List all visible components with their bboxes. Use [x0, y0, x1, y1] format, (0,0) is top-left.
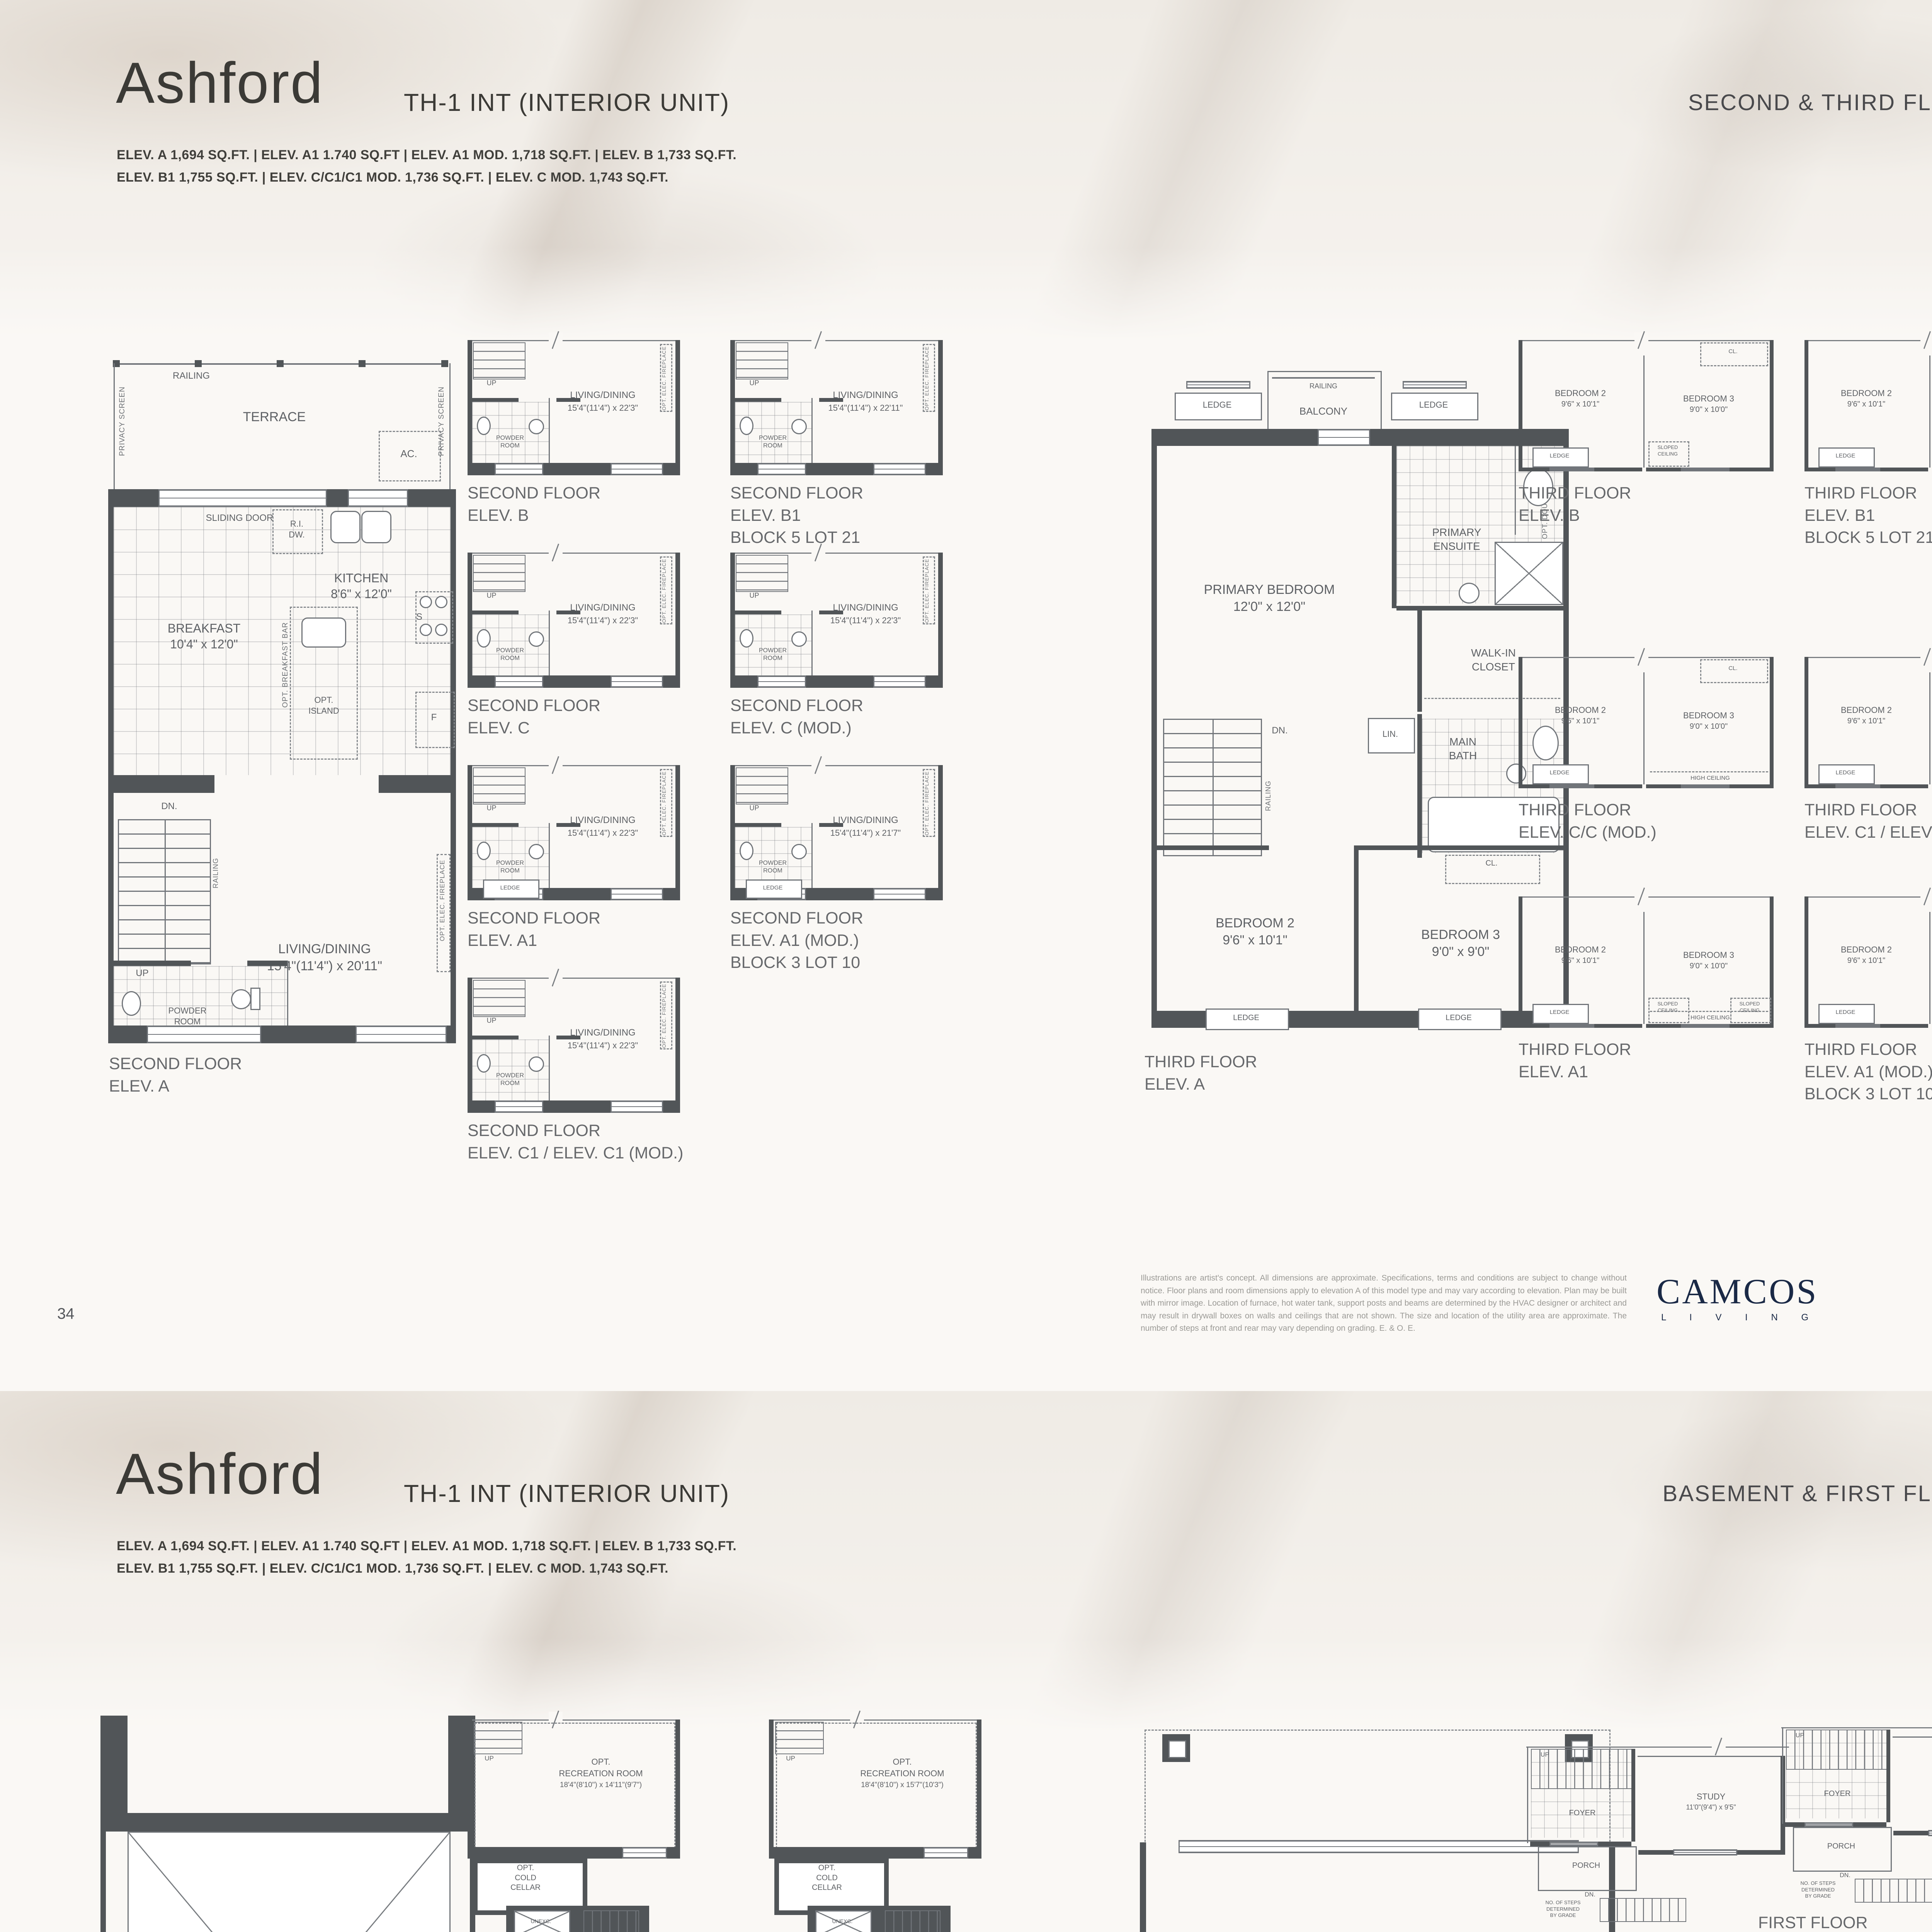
wall: [1151, 429, 1157, 1028]
bedroom2-dims: 9'6" x 10'1": [1561, 716, 1600, 726]
element: BEDROOM 2: [1841, 705, 1892, 716]
wall: [1392, 446, 1396, 608]
window: [757, 675, 806, 688]
living-dining-dims: 15'4"(11'4") x 22'3": [568, 615, 638, 626]
wall: [114, 961, 191, 966]
element: 9'6" x 10'1": [1847, 400, 1886, 410]
opt-breakfast-bar-label: OPT. BREAKFAST BAR: [281, 622, 290, 707]
dn-label: DN.: [1585, 1891, 1595, 1899]
element: ELEV. B: [468, 505, 600, 527]
main-plan-second-floor-elev-a: RAILING PRIVACY SCREEN PRIVACY SCREEN TE…: [108, 359, 456, 1043]
kitchen-window: [348, 489, 408, 507]
window: [873, 463, 926, 475]
high-ceiling-line: [1650, 771, 1768, 774]
foyer-label: FOYER: [1824, 1789, 1851, 1799]
window: [1835, 1024, 1880, 1028]
front-door: [1804, 1822, 1853, 1827]
fireplace-label: OPT. ELEC. FIREPLACE: [661, 984, 667, 1048]
caption-second-floor-elev-b1-block-5-lot-21: SECOND FLOORELEV. B1BLOCK 5 LOT 21: [730, 482, 863, 549]
plan-geometry: [1527, 1747, 1528, 1843]
bedroom2-label: BEDROOM 29'6" x 10'1": [1216, 915, 1294, 949]
living-dining-label: LIVING/DINING: [833, 815, 898, 827]
porch-label: PORCH: [1827, 1842, 1855, 1852]
front-window: [355, 1026, 447, 1043]
plan-geometry: [675, 340, 680, 475]
element: CLOSET: [1471, 660, 1516, 674]
element: ROOM: [496, 442, 524, 450]
party-wall-line: [1804, 657, 1932, 658]
element: UP: [485, 1754, 494, 1763]
mini-plan-first-floor: UPFOYERSTUDY11'0"(9'4") x 10'1"PORCHDN.N…: [1781, 1727, 1932, 1903]
up-label: UP: [486, 591, 496, 600]
wall: [277, 360, 284, 367]
mini-plan-second-floor: UPOPT. ELEC. FIREPLACEPOWDERROOMLEDGELIV…: [468, 765, 680, 900]
party-wall-line: [1519, 340, 1774, 341]
living-dining-label: LIVING/DINING: [833, 602, 898, 614]
plan-geometry: [938, 553, 943, 688]
lbl: LEDGE: [1203, 400, 1232, 410]
study-dims: 11'0"(9'4") x 9'5": [1686, 1803, 1736, 1812]
main-plan-basement-elev-a: UNEXCAVATED UP FURNACE HWT LOCATIONOF FU…: [100, 1716, 475, 1932]
element: SECOND FLOOR: [730, 907, 863, 930]
up-label: UP: [749, 591, 759, 600]
lbl: LEDGE: [1446, 1013, 1472, 1023]
page-title: Ashford: [116, 1440, 324, 1507]
fireplace-label: OPT. ELEC. FIREPLACE: [661, 771, 667, 835]
plan-geometry: [1643, 355, 1645, 468]
element: BEDROOM 3: [1683, 710, 1734, 721]
ensuite-toilet: [1459, 583, 1480, 604]
powder-sink: [740, 842, 753, 860]
bedroom3-label: BEDROOM 3: [1683, 393, 1734, 404]
stair-railing-label: RAILING: [212, 858, 220, 888]
element: ROOM: [496, 1080, 524, 1087]
bedroom2-label: BEDROOM 2: [1841, 388, 1892, 399]
up-label: UP: [486, 379, 496, 388]
element: STUDY: [1697, 1791, 1726, 1802]
bedroom2-dims: 9'6" x 10'1": [1847, 400, 1886, 410]
element: LEDGE: [1550, 1009, 1570, 1016]
window: [1549, 784, 1594, 788]
rec-room-label2: RECREATION ROOM: [860, 1768, 944, 1779]
caption-third-floor-elev-b1-block-5-lot-21: THIRD FLOORELEV. B1BLOCK 5 LOT 21: [1804, 482, 1932, 549]
sliding-door-opening: [158, 489, 327, 507]
wall: [100, 1813, 475, 1832]
fireplace-label: OPT. ELEC. FIREPLACE: [924, 559, 930, 623]
element: POWDER: [496, 647, 524, 655]
window: [611, 463, 663, 475]
party-wall-line: [468, 1719, 680, 1721]
element: BALCONY: [1299, 405, 1347, 418]
plan-geometry: [468, 340, 472, 475]
linen-label: LIN.: [1383, 729, 1398, 740]
element: POWDER: [496, 1072, 524, 1080]
bedroom3-label: BEDROOM 3: [1683, 710, 1734, 721]
living-dining-dims: 15'4"(11'4") x 21'7": [830, 828, 901, 838]
wall: [247, 961, 288, 966]
element: BREAKFAST: [168, 621, 241, 636]
element: SECOND FLOOR: [468, 482, 600, 505]
window: [1549, 468, 1594, 471]
ledge-label: LEDGE: [1550, 1009, 1570, 1016]
oval: [435, 624, 447, 636]
steps-note: NO. OF STEPSDETERMINEDBY GRADE: [1800, 1880, 1835, 1900]
mini-plan-third-floor: LEDGEBEDROOM 29'6" x 10'1"BEDROOM 39'0" …: [1519, 657, 1774, 792]
element: CELLAR: [812, 1883, 842, 1893]
living-dining-label: LIVING/DINING: [570, 815, 635, 827]
stairs: [736, 555, 788, 592]
window: [611, 888, 663, 900]
party-wall-line: [468, 340, 680, 341]
plan-geometry: [1886, 1730, 1890, 1822]
fireplace-label: OPT. ELEC. FIREPLACE: [661, 559, 667, 623]
plan-geometry: [468, 553, 472, 688]
element: DETERMINED: [1545, 1906, 1580, 1913]
mini-plan-second-floor: UPOPT. ELEC. FIREPLACEPOWDERROOMLIVING/D…: [468, 340, 680, 475]
element: DW.: [289, 529, 305, 540]
ledge-label: LEDGE: [763, 884, 783, 891]
window: [495, 675, 543, 688]
ac-label: AC.: [400, 447, 417, 460]
bedroom2-label: BEDROOM 2: [1555, 388, 1606, 399]
mini-plan-third-floor: LEDGEBEDROOM 29'6" x 10'1"BEDROOM 39'0" …: [1519, 340, 1774, 475]
plan-geometry: [472, 398, 519, 402]
element: SECOND FLOOR: [468, 1120, 683, 1142]
up-label: UP: [486, 1016, 496, 1025]
caption-second-floor-elev-c1-elev-c1-mod-: SECOND FLOORELEV. C1 / ELEV. C1 (MOD.): [468, 1120, 683, 1164]
rec-room-label: OPT.: [592, 1757, 611, 1767]
party-wall-line: [468, 553, 680, 554]
unexc-label: UNEXC.: [531, 1918, 551, 1925]
element: 15'4"(11'4") x 22'3": [568, 828, 638, 838]
element: THIRD FLOOR: [1804, 799, 1932, 821]
wall: [379, 775, 456, 793]
element: THIRD FLOOR: [1145, 1051, 1257, 1073]
stove-label: S: [416, 611, 422, 623]
element: 12'0" x 12'0": [1204, 599, 1335, 616]
element: BLOCK 5 LOT 21: [1804, 527, 1932, 549]
ledge-label: LEDGE: [1836, 769, 1855, 776]
element: LEDGE: [1550, 769, 1570, 776]
element: F: [431, 712, 437, 724]
powder-toilet: [529, 419, 544, 434]
element: 9'6" x 10'1": [1847, 956, 1886, 966]
stairs: [736, 767, 788, 804]
page-basement-first-floor: Ashford TH-1 INT (INTERIOR UNIT) BASEMEN…: [0, 1391, 1932, 1932]
party-wall-line: [730, 340, 943, 341]
window: [495, 1100, 543, 1113]
element: BEDROOM 2: [1555, 944, 1606, 955]
powder-toilet: [791, 631, 807, 647]
bedroom2-dims: 9'6" x 10'1": [1561, 400, 1600, 410]
plan-geometry: [1643, 672, 1645, 784]
wall: [1157, 845, 1269, 850]
caption-third-floor-elev-a1: THIRD FLOORELEV. A1: [1519, 1039, 1631, 1083]
plan-geometry: [769, 1847, 885, 1859]
plan-geometry: [1770, 657, 1774, 788]
primary-bedroom-label: PRIMARY BEDROOM12'0" x 12'0": [1204, 582, 1335, 615]
up-label: UP: [486, 804, 496, 813]
element: SLOPED: [1740, 1001, 1760, 1007]
plan-geometry: [472, 611, 519, 614]
caption-second-floor-elev-a1-mod-block-3-lot-10: SECOND FLOORELEV. A1 (MOD.)BLOCK 3 LOT 1…: [730, 907, 863, 974]
terrace-label: TERRACE: [243, 409, 306, 426]
window: [622, 1847, 667, 1859]
plan-geometry: [1929, 355, 1930, 468]
element: LEDGE: [1203, 400, 1232, 410]
wall: [1354, 850, 1359, 1011]
stairs: [473, 767, 526, 804]
element: LEDGE: [500, 884, 520, 891]
wall: [441, 360, 448, 367]
fireplace-label: OPT. ELEC. FIREPLACE: [439, 860, 446, 941]
stairs: [736, 342, 788, 379]
plan-geometry: [1929, 672, 1930, 784]
stairs: [473, 342, 526, 379]
element: BEDROOM 2: [1841, 388, 1892, 399]
window: [1681, 1024, 1730, 1028]
element: LEDGE: [1836, 1009, 1855, 1016]
ledge-label: LEDGE: [1836, 452, 1855, 459]
element: POWDER: [496, 434, 524, 442]
main-bath-label: MAINBATH: [1449, 735, 1477, 763]
wall: [1140, 1842, 1146, 1932]
element: S: [416, 611, 422, 623]
powder-toilet: [529, 1056, 544, 1072]
plan-geometry: [675, 1719, 680, 1852]
plan-geometry: [1929, 912, 1930, 1024]
balcony-door: [1318, 429, 1370, 446]
living-dining-label: LIVING/DINING: [833, 389, 898, 401]
page-subtitle: TH-1 INT (INTERIOR UNIT): [404, 88, 730, 117]
element: ROOM: [759, 867, 787, 875]
element: ELEV. A1: [1519, 1061, 1631, 1083]
powder-sink: [122, 991, 141, 1016]
specs-line-1: ELEV. A 1,694 SQ.FT. | ELEV. A1 1.740 SQ…: [117, 1539, 736, 1554]
powder-room-label: POWDERROOM: [759, 859, 787, 875]
plan-geometry: [1804, 657, 1808, 788]
main-plan-third-floor-elev-a: LEDGE LEDGE RAILING BALCONY PRIMARY BEDR…: [1151, 371, 1569, 1028]
element: ISLAND: [308, 706, 339, 716]
element: THIRD FLOOR: [1519, 1039, 1631, 1061]
element: ELEV. C1 / ELEV. C1 (MOD.): [468, 1142, 683, 1165]
plan-geometry: [1804, 896, 1808, 1028]
element: 9'6" x 10'1": [1561, 400, 1600, 410]
element: ENSUITE: [1432, 539, 1481, 553]
element: LEDGE: [1446, 1013, 1472, 1023]
wall: [108, 775, 214, 793]
plan-geometry: [472, 1036, 519, 1039]
unexc-label: UNEXC.: [832, 1918, 853, 1925]
railing-label: RAILING: [173, 370, 210, 382]
party-wall-line: [1519, 896, 1774, 898]
dn-label: DN.: [1840, 1872, 1850, 1879]
wall: [1417, 611, 1422, 712]
element: R.I.: [289, 519, 305, 529]
element: LIVING/DINING: [570, 602, 635, 614]
element: BEDROOM 2: [1841, 944, 1892, 955]
plan-geometry: [549, 1036, 550, 1100]
powder-toilet: [791, 844, 807, 859]
mini-plan-third-floor: LEDGEBEDROOM 29'6" x 10'1"BEDROOM 39'0" …: [1804, 340, 1932, 475]
plan-geometry: [1638, 1756, 1784, 1757]
word: CAMCOS: [1656, 1274, 1819, 1309]
element: OPT.: [510, 1863, 541, 1873]
window: [1835, 468, 1880, 471]
opt-island-label: OPT.ISLAND: [308, 695, 339, 716]
element: 15'4"(11'4") x 22'3": [568, 1040, 638, 1051]
powder-room-label: POWDERROOM: [759, 434, 787, 450]
powder-toilet: [529, 844, 544, 859]
caption-second-floor-elev-a1: SECOND FLOORELEV. A1: [468, 907, 600, 952]
win: [1403, 381, 1467, 389]
element: POWDER: [759, 859, 787, 867]
cold-cellar-label: OPT.COLDCELLAR: [812, 1863, 842, 1893]
plan-geometry: [549, 611, 550, 675]
wall-break: [1634, 332, 1648, 348]
rec-room-label2: RECREATION ROOM: [559, 1768, 643, 1779]
wall: [195, 360, 202, 367]
plan-geometry: [730, 553, 735, 688]
element: 15'4"(11'4") x 21'7": [830, 828, 901, 838]
element: MAIN: [1449, 735, 1477, 749]
up-label: UP: [786, 1754, 795, 1763]
caption-second-floor-elev-b: SECOND FLOORELEV. B: [468, 482, 600, 527]
powder-toilet: [791, 419, 807, 434]
fireplace-label: OPT. ELEC. FIREPLACE: [924, 346, 930, 410]
win: [1186, 381, 1250, 389]
element: CEILING: [1658, 451, 1678, 457]
mini-plan-basement: UPOPT.RECREATION ROOM18'4"(8'10") x 14'1…: [468, 1719, 680, 1932]
element: 18'4"(8'10") x 15'7"(10'3"): [861, 1781, 944, 1790]
plan-geometry: [1519, 657, 1522, 788]
sloped-ceiling-label: SLOPEDCEILING: [1658, 444, 1678, 457]
element: BEDROOM 2: [1555, 705, 1606, 716]
element: 9'6" x 10'1": [1847, 716, 1886, 726]
privacy-screen-label-left: PRIVACY SCREEN: [118, 386, 127, 456]
element: HIGH CEILING: [1690, 1014, 1730, 1021]
window: [495, 463, 543, 475]
mini-plan-third-floor: LEDGEBEDROOM 29'6" x 10'1"BEDROOM 39'0" …: [1804, 896, 1932, 1032]
wall-break: [549, 970, 563, 985]
living-dining-dims: 15'4"(11'4") x 22'3": [830, 615, 901, 626]
mini-plan-first-floor: UPFOYERSTUDY11'0"(9'4") x 9'5"PORCHDN.NO…: [1526, 1747, 1789, 1922]
element: UP: [1541, 1751, 1549, 1759]
element: LEDGE: [763, 884, 783, 891]
element: LEDGE: [1233, 1013, 1259, 1023]
garage-door: [1179, 1840, 1579, 1853]
element: POWDER: [759, 647, 787, 655]
up-label: UP: [749, 379, 759, 388]
ln: [1272, 377, 1375, 379]
plan-geometry: [769, 1719, 774, 1852]
element: OPT.: [893, 1757, 912, 1767]
element: 11'0"(9'4") x 9'5": [1686, 1803, 1736, 1812]
wall: [1417, 714, 1422, 858]
living-dining-dims: 15'4"(11'4") x 22'3": [568, 403, 638, 413]
wall-break: [811, 332, 825, 348]
oval: [420, 624, 432, 636]
plan-geometry: [675, 765, 680, 900]
element: ELEV. B1: [730, 505, 863, 527]
sub: L I V I N G: [1661, 1312, 1819, 1323]
plan-geometry: [811, 611, 813, 675]
wall: [108, 489, 114, 1043]
element: OPT.: [592, 1757, 611, 1767]
ln: [1515, 446, 1516, 535]
ln: [114, 363, 115, 489]
caption-third-floor-elev-c1-elev-c1-mod-: THIRD FLOORELEV. C1 / ELEV. C1 (MOD.): [1804, 799, 1932, 844]
primary-ensuite-label: PRIMARYENSUITE: [1432, 526, 1481, 553]
cold-cellar-label: OPT.COLDCELLAR: [510, 1863, 541, 1893]
powder-toilet: [231, 989, 251, 1009]
element: POWDER: [496, 859, 524, 867]
living-dining-dims: 15'4"(11'4") x 22'11": [828, 403, 903, 413]
window: [873, 888, 926, 900]
element: SECOND FLOOR: [109, 1053, 242, 1075]
element: LEDGE: [1836, 769, 1855, 776]
element: 9'6" x 10'1": [1561, 716, 1600, 726]
powder-sink: [740, 629, 753, 648]
bedroom3-dims: 9'0" x 10'0": [1690, 722, 1728, 732]
living-dining-dims: 15'4"(11'4") x 22'3": [568, 1040, 638, 1051]
wall-break: [1634, 649, 1648, 665]
element: POWDER: [168, 1005, 207, 1016]
high-ceiling-label: HIGH CEILING: [1690, 1014, 1730, 1021]
element: CELLAR: [510, 1883, 541, 1893]
element: BEDROOM 3: [1683, 950, 1734, 961]
element: AC.: [400, 447, 417, 460]
plan-geometry: [735, 611, 781, 614]
closet-label: CL.: [1728, 348, 1737, 355]
plan-geometry: [730, 765, 735, 900]
study-label: STUDY: [1697, 1791, 1726, 1802]
high-ceiling-label: HIGH CEILING: [1690, 774, 1730, 782]
element: RECREATION ROOM: [559, 1768, 643, 1779]
element: SECOND FLOOR: [468, 695, 600, 717]
element: BLOCK 5 LOT 21: [730, 527, 863, 549]
element: OPT.: [812, 1863, 842, 1873]
section-heading: SECOND & THIRD FLOOR: [1688, 90, 1932, 116]
element: ELEV. C/C (MOD.): [1519, 821, 1656, 844]
element: BLOCK 3 LOT 10: [730, 952, 863, 974]
bedroom3-dims: 9'0" x 10'0": [1690, 961, 1728, 971]
front-door: [1549, 1842, 1598, 1846]
window: [923, 1847, 968, 1859]
element: BLOCK 3 LOT 10: [1804, 1083, 1932, 1105]
balcony-label: BALCONY: [1299, 405, 1347, 418]
element: 9'0" x 9'0": [1421, 944, 1500, 961]
lbl: LEDGE: [1233, 1013, 1259, 1023]
plan-geometry: [1631, 1749, 1635, 1842]
window: [1549, 1024, 1594, 1028]
sink-fixture: [330, 511, 361, 543]
element: CL.: [1728, 665, 1737, 672]
element: ELEV. A1: [468, 930, 600, 952]
element: LEDGE: [1550, 452, 1570, 459]
element: 9'0" x 10'0": [1690, 405, 1728, 415]
window: [873, 675, 926, 688]
bedroom2-dims: 9'6" x 10'1": [1561, 956, 1600, 966]
powder-room-label: POWDERROOM: [496, 859, 524, 875]
wall-break: [549, 332, 563, 348]
foyer-label: FOYER: [1569, 1808, 1596, 1818]
breakfast-label: BREAKFAST10'4" x 12'0": [168, 621, 241, 652]
element: ELEV. B: [1519, 505, 1631, 527]
plan-geometry: [1643, 912, 1645, 1024]
plan-geometry: [675, 553, 680, 688]
stairs: [473, 980, 526, 1017]
